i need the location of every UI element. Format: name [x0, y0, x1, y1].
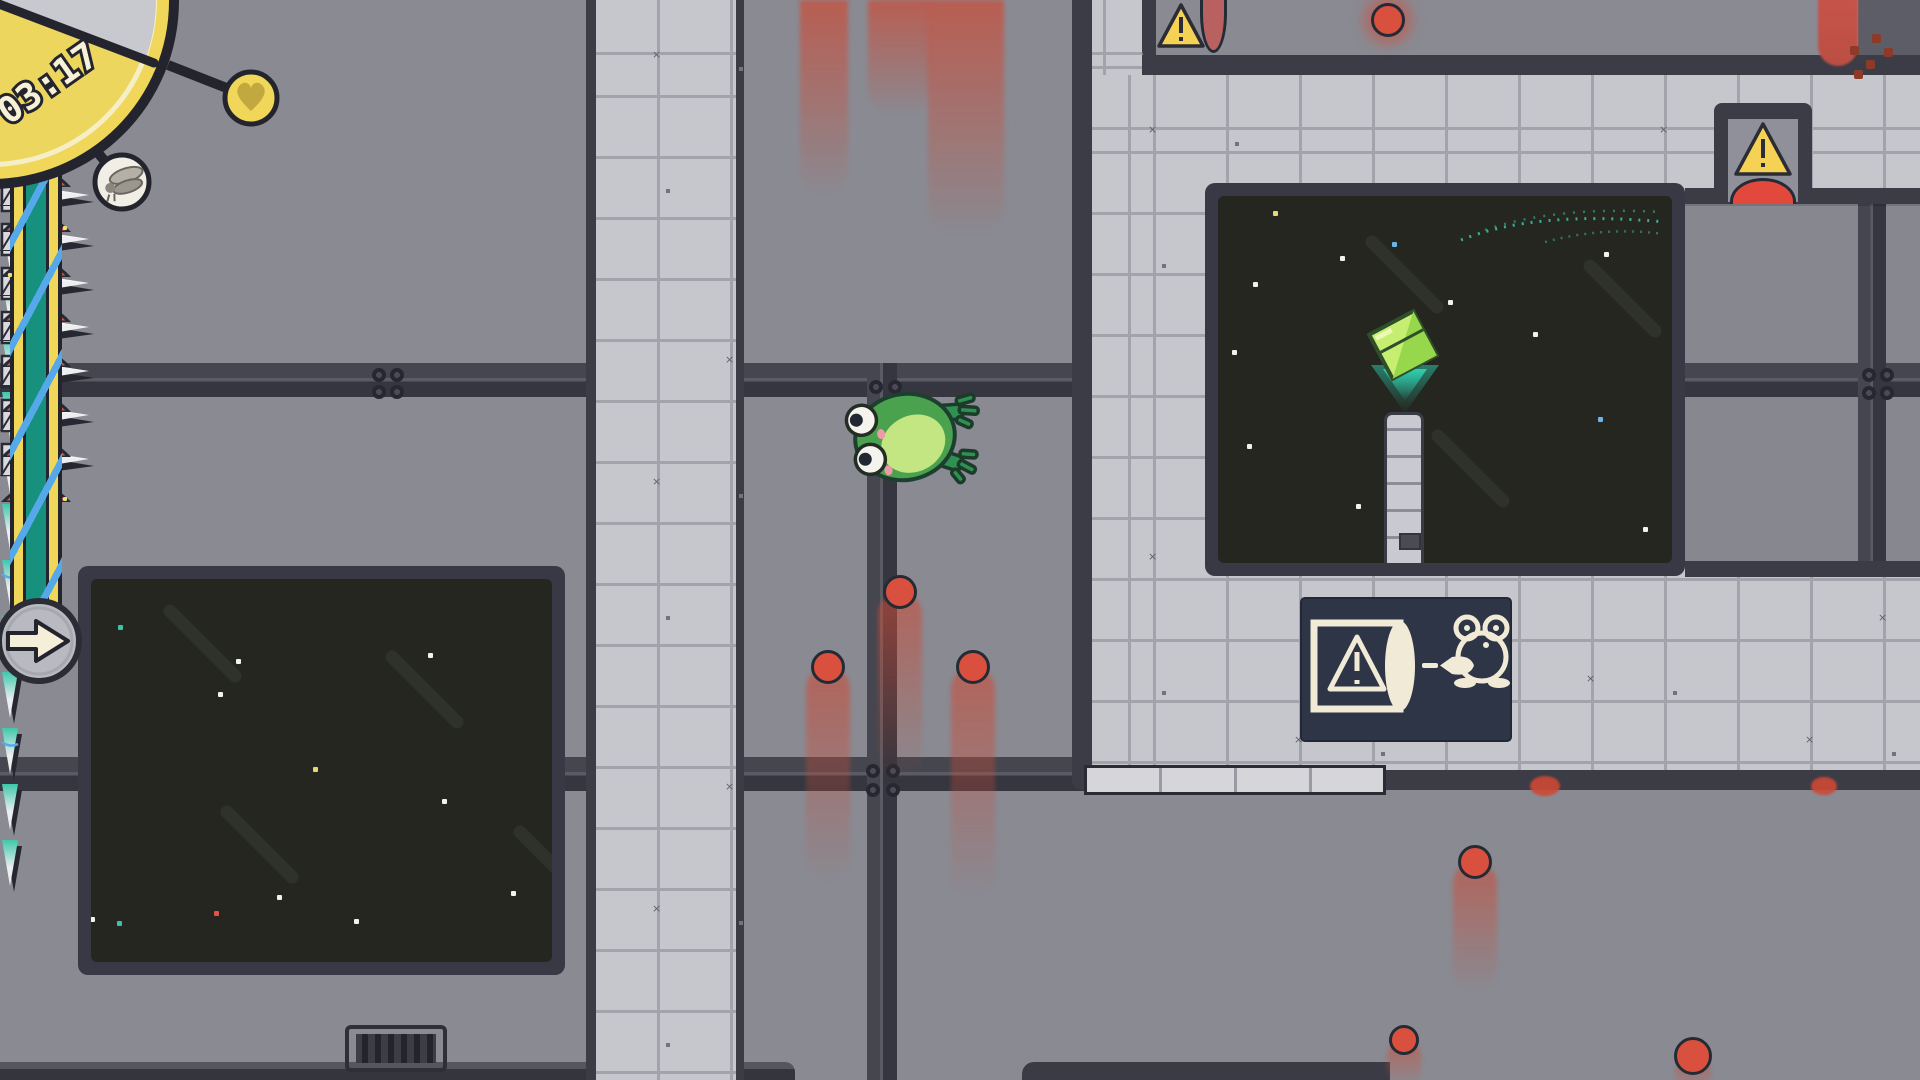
- dust-sparkle: [63, 226, 67, 230]
- bolt-screw: [372, 368, 386, 382]
- bolt-screw: [1880, 386, 1894, 400]
- scratch-streak: [511, 823, 552, 906]
- window-left-starfield: [91, 579, 552, 962]
- star: [1533, 332, 1538, 337]
- projectile-impact-blob: [1811, 777, 1837, 795]
- tile-rivet: [666, 616, 670, 620]
- bolt-screw: [372, 385, 386, 399]
- star: [1340, 256, 1345, 261]
- blood-splatter-dot: [1884, 48, 1893, 57]
- turret-alcove-frame-right: [1798, 110, 1812, 202]
- tile-screw-icon: ×: [1659, 124, 1668, 135]
- bolt-screw: [866, 783, 880, 797]
- star: [1273, 211, 1278, 216]
- tile-rivet: [666, 1043, 670, 1047]
- scratch-streak: [161, 602, 244, 685]
- scratch-streak: [383, 648, 466, 731]
- star: [1604, 252, 1609, 257]
- red-projectile: [1371, 3, 1405, 37]
- scratch-streak: [1581, 257, 1664, 340]
- tile-screw-icon: ×: [1805, 734, 1814, 745]
- star: [117, 921, 122, 926]
- star: [1643, 527, 1648, 532]
- gem-pedestal: [1384, 412, 1424, 563]
- scratch-streak: [1429, 427, 1512, 510]
- star: [1392, 242, 1397, 247]
- hud-timer-clock: 03:17: [0, 0, 310, 260]
- star: [1247, 444, 1252, 449]
- projectile-smear: [1818, 0, 1858, 66]
- star: [442, 799, 447, 804]
- structure-top-edge: [1142, 55, 1920, 75]
- star: [1598, 417, 1603, 422]
- corridor-gap: [1685, 196, 1920, 563]
- red-projectile: [1458, 845, 1492, 879]
- red-projectile: [883, 575, 917, 609]
- star: [218, 692, 223, 697]
- star: [1448, 300, 1453, 305]
- tile-rivet: [1892, 752, 1896, 756]
- pedestal-slot: [1399, 533, 1421, 550]
- wall-right-structure: ××××××××××××××××××: [1072, 0, 1920, 790]
- star: [236, 659, 241, 664]
- tile-rivet: [739, 494, 743, 498]
- spike-cap-band: [1084, 765, 1386, 795]
- blood-splatter-dot: [1850, 46, 1859, 55]
- bolt-screw: [390, 385, 404, 399]
- window-left: [78, 566, 565, 975]
- star: [1253, 282, 1258, 287]
- tutorial-sign: [1300, 597, 1512, 742]
- turret-alcove-foot-left: [1702, 190, 1728, 204]
- vent-grate: [345, 1025, 447, 1072]
- tile-rivet: [739, 67, 743, 71]
- scratch-streak: [218, 803, 301, 886]
- star: [1232, 350, 1237, 355]
- projectile-trail: [878, 592, 922, 782]
- star: [91, 917, 95, 922]
- star: [1356, 504, 1361, 509]
- corridor-bottom-edge: [1685, 561, 1920, 577]
- projectile-trail: [951, 667, 995, 897]
- star: [214, 911, 219, 916]
- direction-arrow-badge: [0, 596, 86, 688]
- tile-screw-icon: ×: [725, 781, 734, 792]
- ceiling-spike: [0, 728, 24, 784]
- tile-rivet: [1381, 752, 1385, 756]
- blood-splatter-dot: [1854, 70, 1863, 79]
- tile-screw-icon: ×: [652, 476, 661, 487]
- particle-swirl: [1455, 196, 1671, 256]
- bolt-screw: [1862, 386, 1876, 400]
- wall-column: ×××××: [586, 0, 744, 1080]
- floor-ledge-right: [1022, 1062, 1390, 1080]
- window-right-starfield: [1218, 196, 1672, 563]
- red-projectile: [811, 650, 845, 684]
- bolt-screw: [1862, 368, 1876, 382]
- red-projectile: [1674, 1037, 1712, 1075]
- bolt-screw: [390, 368, 404, 382]
- red-projectile: [956, 650, 990, 684]
- tile-screw-icon: ×: [1148, 124, 1157, 135]
- ceiling-spike: [0, 840, 24, 896]
- tile-screw-icon: ×: [1148, 551, 1157, 562]
- blood-splatter-dot: [1872, 34, 1881, 43]
- projectile-trail: [1453, 862, 1497, 992]
- tile-screw-icon: ×: [652, 49, 661, 60]
- star: [118, 625, 123, 630]
- warning-triangle-icon: [1732, 120, 1794, 178]
- blood-splatter-dot: [1866, 60, 1875, 69]
- dust-sparkle: [63, 497, 67, 501]
- projectile-impact-blob: [1530, 776, 1560, 796]
- tile-screw-icon: ×: [725, 354, 734, 365]
- bolt-screw: [886, 783, 900, 797]
- tile-screw-icon: ×: [1878, 612, 1887, 623]
- tile-rivet: [666, 189, 670, 193]
- tile-rivet: [1162, 691, 1166, 695]
- warning-triangle-icon: [1156, 2, 1206, 50]
- star: [428, 653, 433, 658]
- tile-rivet: [739, 921, 743, 925]
- window-right: [1205, 183, 1685, 576]
- tile-rivet: [1162, 264, 1166, 268]
- alcove-top-left-post: [1142, 0, 1156, 60]
- green-gem: [1345, 301, 1465, 431]
- red-projectile: [1389, 1025, 1419, 1055]
- game-viewport: ××××× ××××××××××××××××××: [0, 0, 1920, 1080]
- turret-alcove-foot-right: [1798, 190, 1824, 204]
- projectile-trail: [806, 667, 850, 882]
- heart-token: [219, 66, 283, 130]
- ceiling-spike: [0, 784, 24, 840]
- fly-token: [88, 148, 156, 216]
- dust-sparkle: [8, 273, 12, 277]
- structure-left-edge: [1072, 0, 1092, 790]
- turret-alcove-frame-left: [1714, 110, 1728, 202]
- structure-top-stub: [1092, 0, 1142, 75]
- star: [313, 767, 318, 772]
- tile-rivet: [1235, 142, 1239, 146]
- star: [277, 895, 282, 900]
- star: [511, 891, 516, 896]
- tile-screw-icon: ×: [652, 903, 661, 914]
- projectile-trail: [868, 0, 930, 115]
- star: [354, 919, 359, 924]
- projectile-trail: [800, 0, 848, 195]
- tile-rivet: [1673, 691, 1677, 695]
- frog-player: [830, 372, 980, 502]
- projectile-trail: [928, 0, 1004, 235]
- bolt-screw: [1880, 368, 1894, 382]
- tile-screw-icon: ×: [1586, 673, 1595, 684]
